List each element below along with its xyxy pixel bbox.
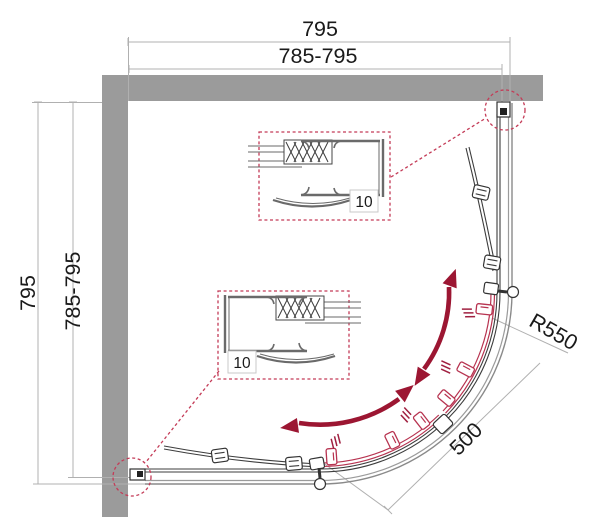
door-roller	[476, 303, 493, 315]
dim-height-total	[32, 102, 145, 484]
door-roller	[456, 361, 475, 377]
detail-callout-top: 10	[248, 90, 525, 220]
door-roller	[413, 411, 431, 430]
shower-enclosure-plan-drawing: 10	[0, 0, 600, 531]
detail-leader-line	[146, 371, 219, 462]
dim-height-total-label: 795	[16, 275, 40, 311]
dim-door-opening-lines	[322, 363, 540, 514]
door-hatch-marks	[327, 433, 344, 450]
wall-left	[102, 75, 128, 517]
dim-height-range-label: 785-795	[61, 252, 85, 331]
wall-profile-top-right-core	[500, 108, 507, 115]
door-hatch-marks	[400, 407, 412, 423]
door-roller	[384, 431, 400, 450]
fixed-panel-bottom	[164, 446, 319, 471]
dim-width-total-label: 795	[302, 17, 338, 41]
door-handle-upper	[483, 282, 518, 297]
wall-profile-bottom-left-core	[137, 471, 143, 477]
plan-drawing-canvas: 10	[0, 0, 600, 531]
dim-radius-label: R550	[525, 309, 582, 356]
panel-bracket	[285, 456, 302, 470]
detail-top-value-label: 10	[355, 194, 373, 211]
detail-bottom-value-label: 10	[233, 355, 251, 372]
detail-leader-line	[391, 118, 486, 177]
dim-width-range-label: 785-795	[279, 44, 358, 68]
wall-top	[102, 75, 543, 101]
door-hatch-marks	[460, 304, 476, 321]
slide-arrow-lower	[279, 379, 418, 435]
fixed-panel-top	[466, 147, 501, 271]
door-hatch-marks	[439, 359, 452, 375]
wall-profile-bottom-left	[130, 469, 145, 480]
panel-bracket	[483, 255, 501, 271]
door-roller	[326, 448, 337, 465]
panel-bracket	[211, 448, 229, 463]
slide-arrow-upper	[408, 266, 463, 390]
panel-bracket	[472, 184, 491, 200]
wall-profile-top-right	[497, 102, 510, 117]
